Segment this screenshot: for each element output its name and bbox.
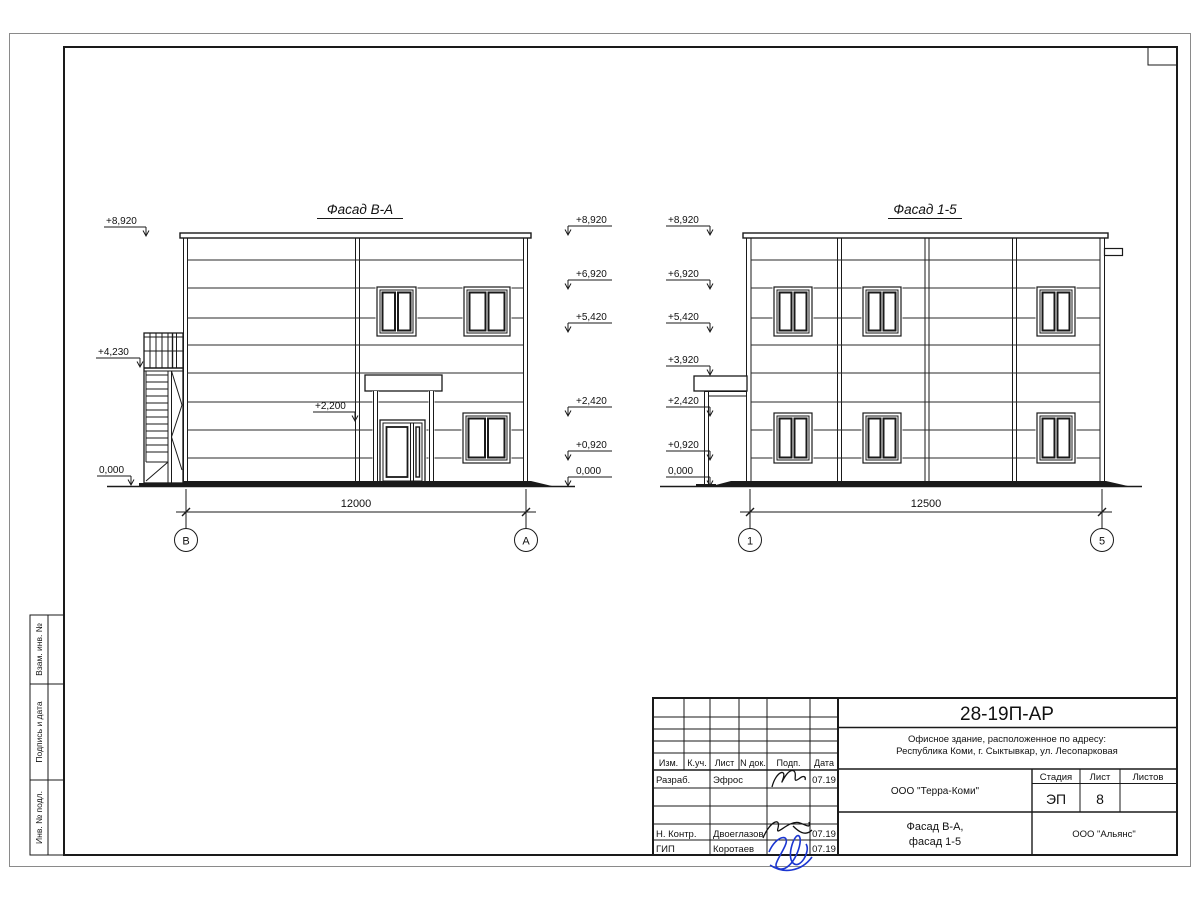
- project-address-line1: Офисное здание, расположенное по адресу:: [908, 734, 1106, 745]
- entrance-door-group: [365, 375, 442, 485]
- elevation-mark: +8,920: [104, 216, 149, 236]
- external-stair: [139, 332, 188, 487]
- plinth-right: [710, 481, 1130, 487]
- contractor-name: ООО "Альянс": [1072, 829, 1136, 840]
- project-address-line2: Республика Коми, г. Сыктывкар, ул. Лесоп…: [896, 746, 1118, 757]
- col-ndok: N док.: [740, 758, 766, 768]
- elevation-mark: 0,000: [565, 466, 612, 486]
- row-date: 07.19: [812, 829, 836, 840]
- title-block: 28-19П-АР Офисное здание, расположенное …: [653, 698, 1177, 870]
- elevation-value: +8,920: [106, 216, 137, 227]
- elevation-value: +2,420: [668, 396, 699, 407]
- row-date: 07.19: [812, 844, 836, 855]
- elevation-mark: +5,420: [666, 312, 713, 332]
- entrance-canopy: [365, 375, 442, 391]
- sheet-label: Лист: [1090, 772, 1111, 783]
- row-name: Двоеглазов: [713, 829, 764, 840]
- drawing-title-line1: Фасад В-А,: [907, 821, 964, 833]
- elevation-value: 0,000: [668, 466, 693, 477]
- elevation-mark: 0,000: [666, 466, 713, 486]
- window: [463, 286, 512, 338]
- row-role: Н. Контр.: [656, 829, 696, 840]
- elevation-mark: +0,920: [666, 440, 713, 460]
- elevation-value: +6,920: [576, 269, 607, 280]
- sheet-number: 8: [1096, 791, 1104, 807]
- elevation-value: +3,920: [668, 355, 699, 366]
- row-date: 07.19: [812, 775, 836, 786]
- drawing-sheet: Взам. инв. № Подпись и дата Инв. № подл.: [0, 0, 1200, 900]
- col-data: Дата: [814, 758, 834, 768]
- elevation-mark: +6,920: [565, 269, 612, 289]
- row-name: Коротаев: [713, 844, 754, 855]
- stair-base-plate: [139, 483, 188, 487]
- window: [462, 412, 512, 465]
- elevation-mark: +2,420: [666, 396, 713, 416]
- window: [862, 412, 903, 465]
- side-label-vzam: Взам. инв. №: [34, 623, 44, 676]
- elevation-value: +0,920: [668, 440, 699, 451]
- window: [1036, 412, 1077, 465]
- window: [773, 412, 814, 465]
- elevation-mark: +6,920: [666, 269, 713, 289]
- axis-label: В: [182, 536, 189, 548]
- col-izm: Изм.: [659, 758, 678, 768]
- dimension-right: 12500 1 5: [739, 489, 1114, 552]
- stage-label: Стадия: [1040, 772, 1072, 783]
- col-podp: Подп.: [777, 758, 801, 768]
- elevation-mark: +8,920: [666, 215, 713, 235]
- axis-label: А: [522, 536, 530, 548]
- roof-outlet: [1105, 249, 1123, 256]
- elevation-mark: +2,200: [313, 401, 358, 421]
- elevation-value: +0,920: [576, 440, 607, 451]
- elevation-value: +5,420: [576, 312, 607, 323]
- elevation-mark: +8,920: [565, 215, 612, 235]
- row-role: ГИП: [656, 844, 675, 855]
- elevation-mark: +3,920: [666, 355, 713, 375]
- elevation-value: 0,000: [576, 466, 601, 477]
- drawing-title-line2: фасад 1-5: [909, 836, 961, 848]
- sheets-label: Листов: [1133, 772, 1164, 783]
- col-list: Лист: [715, 758, 735, 768]
- dimension-value: 12000: [341, 498, 372, 510]
- row-name: Эфрос: [713, 775, 743, 786]
- window: [376, 286, 418, 338]
- facade-left-title: Фасад В-А: [327, 202, 393, 217]
- window: [773, 286, 814, 338]
- dimension-value: 12500: [911, 498, 942, 510]
- elevation-mark: +0,920: [565, 440, 612, 460]
- dimension-left: 12000 В А: [175, 489, 538, 552]
- client-name: ООО "Терра-Коми": [891, 786, 980, 797]
- axis-label: 5: [1099, 536, 1105, 548]
- facade-right-title: Фасад 1-5: [893, 202, 957, 217]
- elevation-mark: +2,420: [565, 396, 612, 416]
- elevation-mark: 0,000: [97, 465, 134, 485]
- window: [1036, 286, 1077, 338]
- side-label-podpis: Подпись и дата: [34, 701, 44, 762]
- side-porch: [694, 376, 747, 484]
- signature-razrab: [772, 771, 805, 787]
- elevation-value: +6,920: [668, 269, 699, 280]
- facade-15-drawing: [660, 233, 1142, 487]
- plinth-left: [157, 481, 554, 487]
- elevation-value: 0,000: [99, 465, 124, 476]
- elevation-value: +5,420: [668, 312, 699, 323]
- facade-drawing-svg: Взам. инв. № Подпись и дата Инв. № подл.: [0, 0, 1200, 900]
- row-role: Разраб.: [656, 775, 690, 786]
- porch-canopy: [694, 376, 747, 391]
- corner-box: [1148, 47, 1177, 65]
- side-attribute-boxes: Взам. инв. № Подпись и дата Инв. № подл.: [30, 615, 64, 855]
- stage-value: ЭП: [1046, 791, 1066, 807]
- window: [862, 286, 903, 338]
- elevation-value: +2,200: [315, 401, 346, 412]
- elevation-value: +2,420: [576, 396, 607, 407]
- col-kuch: К.уч.: [687, 758, 706, 768]
- elevation-mark: +4,230: [96, 347, 143, 367]
- facade-titles: Фасад В-А Фасад 1-5: [317, 202, 962, 219]
- elevation-value: +8,920: [668, 215, 699, 226]
- elevation-value: +4,230: [98, 347, 129, 358]
- side-label-inv: Инв. № подл.: [34, 791, 44, 844]
- axis-label: 1: [747, 536, 753, 548]
- signature-gip: [769, 836, 812, 871]
- elevation-value: +8,920: [576, 215, 607, 226]
- elevation-mark: +5,420: [565, 312, 612, 332]
- document-code: 28-19П-АР: [960, 704, 1054, 725]
